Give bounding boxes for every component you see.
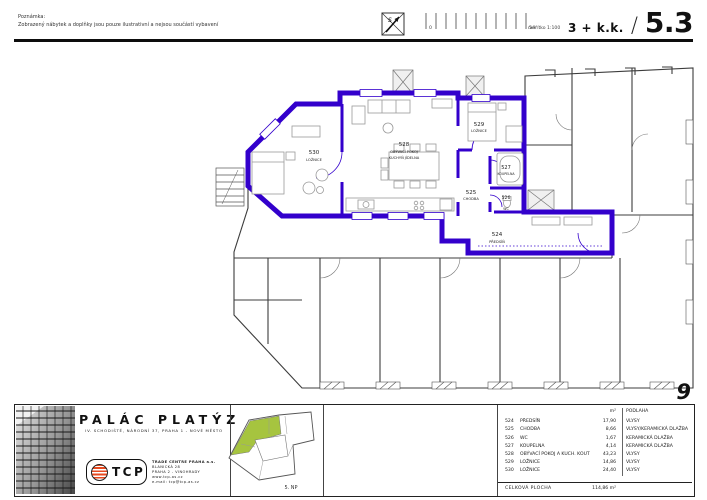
tcp-logo-letters: TCP bbox=[112, 465, 145, 479]
scale-zero-label: 0 bbox=[429, 25, 432, 31]
room-name-524: PŘEDSÍŇ bbox=[489, 239, 505, 244]
furniture-note: Poznámka: Zobrazený nábytek a doplňky js… bbox=[18, 13, 218, 29]
staircase bbox=[216, 168, 244, 206]
room-number-530: 530 bbox=[309, 150, 320, 156]
key-plan: 5. NP bbox=[221, 408, 317, 498]
room-name-530: LOŽNICE bbox=[306, 157, 322, 162]
floor-plan: 530 LOŽNICE 528 OBÝVACÍ POKOJ KUCHYŇ JÍD… bbox=[0, 42, 707, 400]
room-name-525: CHODBA bbox=[463, 197, 479, 201]
room-number-524: 524 bbox=[492, 232, 503, 238]
table-header-floor: PODLAHA bbox=[616, 408, 692, 416]
building-photo bbox=[16, 406, 75, 494]
note-text: Zobrazený nábytek a doplňky jsou pouze i… bbox=[18, 21, 218, 29]
tcp-logo: TCP bbox=[86, 459, 147, 485]
unit-separator: / bbox=[631, 13, 638, 37]
divider bbox=[323, 405, 324, 496]
drawing-sheet: Poznámka: Zobrazený nábytek a doplňky js… bbox=[0, 0, 707, 500]
project-subtitle: IV. SCHODIŠTĚ, NÁRODNÍ 37, PRAHA 1 - NOV… bbox=[79, 428, 229, 433]
scale-caption: měřítko 1:100 bbox=[528, 26, 560, 31]
total-label: CELKOVÁ PLOCHA bbox=[498, 486, 552, 491]
room-number-528: 528 bbox=[399, 142, 410, 148]
room-number-529: 529 bbox=[474, 122, 485, 128]
table-row: 526WC 1,67KERAMICKÁ DLAŽBA bbox=[498, 435, 692, 443]
table-row: 524PŘEDSÍŇ 17,90VLYSY bbox=[498, 418, 692, 426]
table-row: 525CHODBA 8,66VLYSY/KERAMICKÁ DLAŽBA bbox=[498, 426, 692, 434]
company-info: TRADE CENTRE PRAHA a.s. BLANICKÁ 28 PRAH… bbox=[152, 460, 228, 485]
room-name-528-line2: KUCHYŇ JÍDELNA bbox=[389, 155, 420, 160]
table-total-row: CELKOVÁ PLOCHA 114,86 m² bbox=[498, 482, 692, 495]
room-number-527: 527 bbox=[501, 165, 511, 171]
table-row: 527KOUPELNA 4,14KERAMICKÁ DLAŽBA bbox=[498, 443, 692, 451]
table-header-area: m² bbox=[592, 408, 616, 416]
room-name-527: KOUPELNA bbox=[497, 172, 515, 176]
keyplan-floor-label: 5. NP bbox=[284, 485, 297, 491]
layout-type: 3 + k.k. bbox=[568, 21, 624, 35]
room-name-529: LOŽNICE bbox=[471, 128, 487, 133]
unit-identifier: 3 + k.k. / 5.3 bbox=[568, 6, 693, 39]
title-block: PALÁC PLATÝZ IV. SCHODIŠTĚ, NÁRODNÍ 37, … bbox=[14, 404, 695, 497]
tcp-globe-icon bbox=[91, 464, 108, 481]
table-row: 529LOŽNICE 14,86VLYSY bbox=[498, 459, 692, 467]
total-value: 114,86 m² bbox=[562, 483, 616, 495]
room-name-526: WC bbox=[503, 207, 509, 211]
table-header-row: m² PODLAHA bbox=[498, 408, 692, 416]
room-number-525: 525 bbox=[466, 190, 477, 196]
table-row: 530LOŽNICE 24,40VLYSY bbox=[498, 467, 692, 475]
company-email: e-mail: tcp@tcp-as.cz bbox=[152, 480, 228, 485]
table-column-rule bbox=[622, 408, 623, 476]
room-area-table: m² PODLAHA 524PŘEDSÍŇ 17,90VLYSY 525CHOD… bbox=[498, 405, 692, 496]
unit-number: 5.3 bbox=[645, 6, 693, 39]
project-title: PALÁC PLATÝZ bbox=[79, 412, 229, 427]
table-row: 528OBÝVACÍ POKOJ A KUCH. KOUT 43,23VLYSY bbox=[498, 451, 692, 459]
north-arrow-icon: S bbox=[380, 11, 406, 41]
sheet-page-number: 9 bbox=[676, 380, 691, 400]
note-label: Poznámka: bbox=[18, 13, 218, 21]
north-letter: S bbox=[388, 17, 392, 24]
room-name-528-line1: OBÝVACÍ POKOJ bbox=[390, 149, 418, 154]
room-number-526: 526 bbox=[502, 195, 511, 201]
